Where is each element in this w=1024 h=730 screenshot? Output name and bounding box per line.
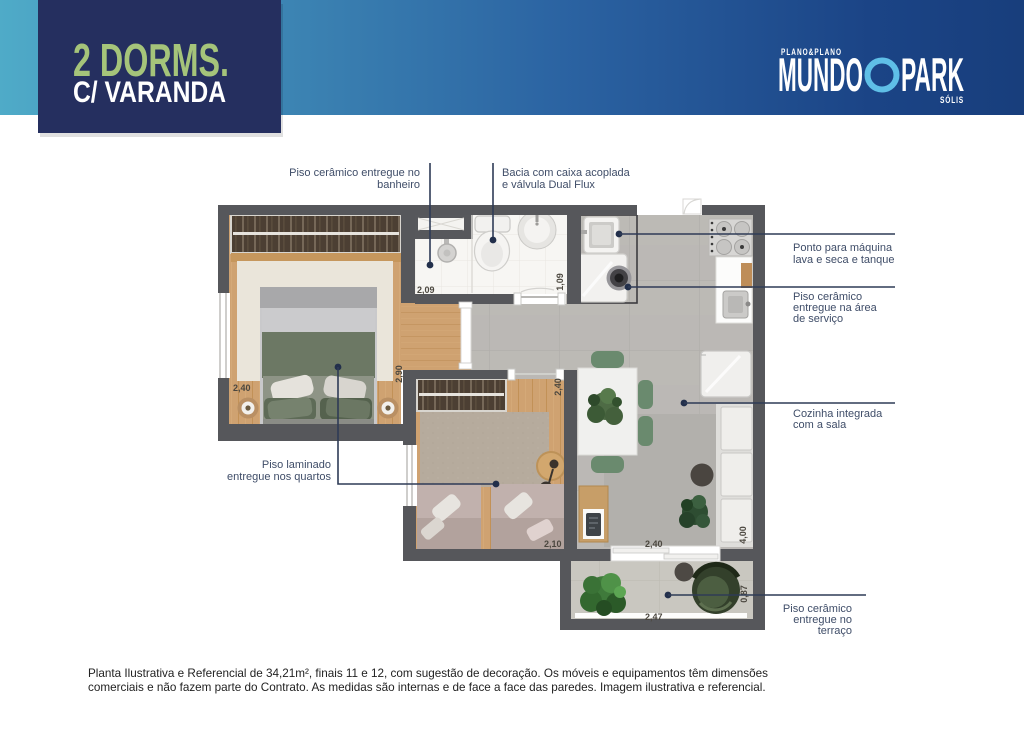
svg-text:MUNDO: MUNDO [778, 48, 863, 101]
svg-text:4,00: 4,00 [738, 526, 748, 544]
svg-text:Ponto para máquina: Ponto para máquina [793, 242, 893, 254]
svg-text:banheiro: banheiro [377, 179, 420, 191]
svg-text:C/ VARANDA: C/ VARANDA [73, 76, 226, 109]
svg-text:SÓLIS: SÓLIS [940, 94, 964, 106]
svg-text:Bacia com caixa acoplada: Bacia com caixa acoplada [502, 167, 631, 179]
svg-text:2,40: 2,40 [233, 383, 251, 393]
svg-text:2,40: 2,40 [553, 378, 563, 396]
svg-text:0,87: 0,87 [739, 585, 749, 603]
svg-text:comerciais e não fazem parte d: comerciais e não fazem parte do Contrato… [88, 681, 766, 694]
svg-text:de serviço: de serviço [793, 313, 843, 325]
svg-text:Planta Ilustrativa e Referenci: Planta Ilustrativa e Referencial de 34,2… [88, 667, 768, 680]
svg-text:1,09: 1,09 [555, 273, 565, 291]
svg-text:2,90: 2,90 [394, 365, 404, 383]
svg-text:Piso cerâmico entregue no: Piso cerâmico entregue no [289, 167, 420, 179]
svg-text:PARK: PARK [901, 48, 964, 101]
svg-text:2,47: 2,47 [645, 612, 663, 622]
svg-text:com a sala: com a sala [793, 419, 847, 431]
svg-text:terraço: terraço [818, 625, 852, 637]
svg-text:2,10: 2,10 [544, 539, 562, 549]
svg-text:e válvula Dual Flux: e válvula Dual Flux [502, 179, 595, 191]
svg-text:lava e seca e tanque: lava e seca e tanque [793, 254, 895, 266]
svg-text:2,40: 2,40 [645, 539, 663, 549]
svg-text:entregue nos quartos: entregue nos quartos [227, 471, 331, 483]
svg-text:Piso laminado: Piso laminado [262, 459, 331, 471]
svg-text:2,09: 2,09 [417, 285, 435, 295]
